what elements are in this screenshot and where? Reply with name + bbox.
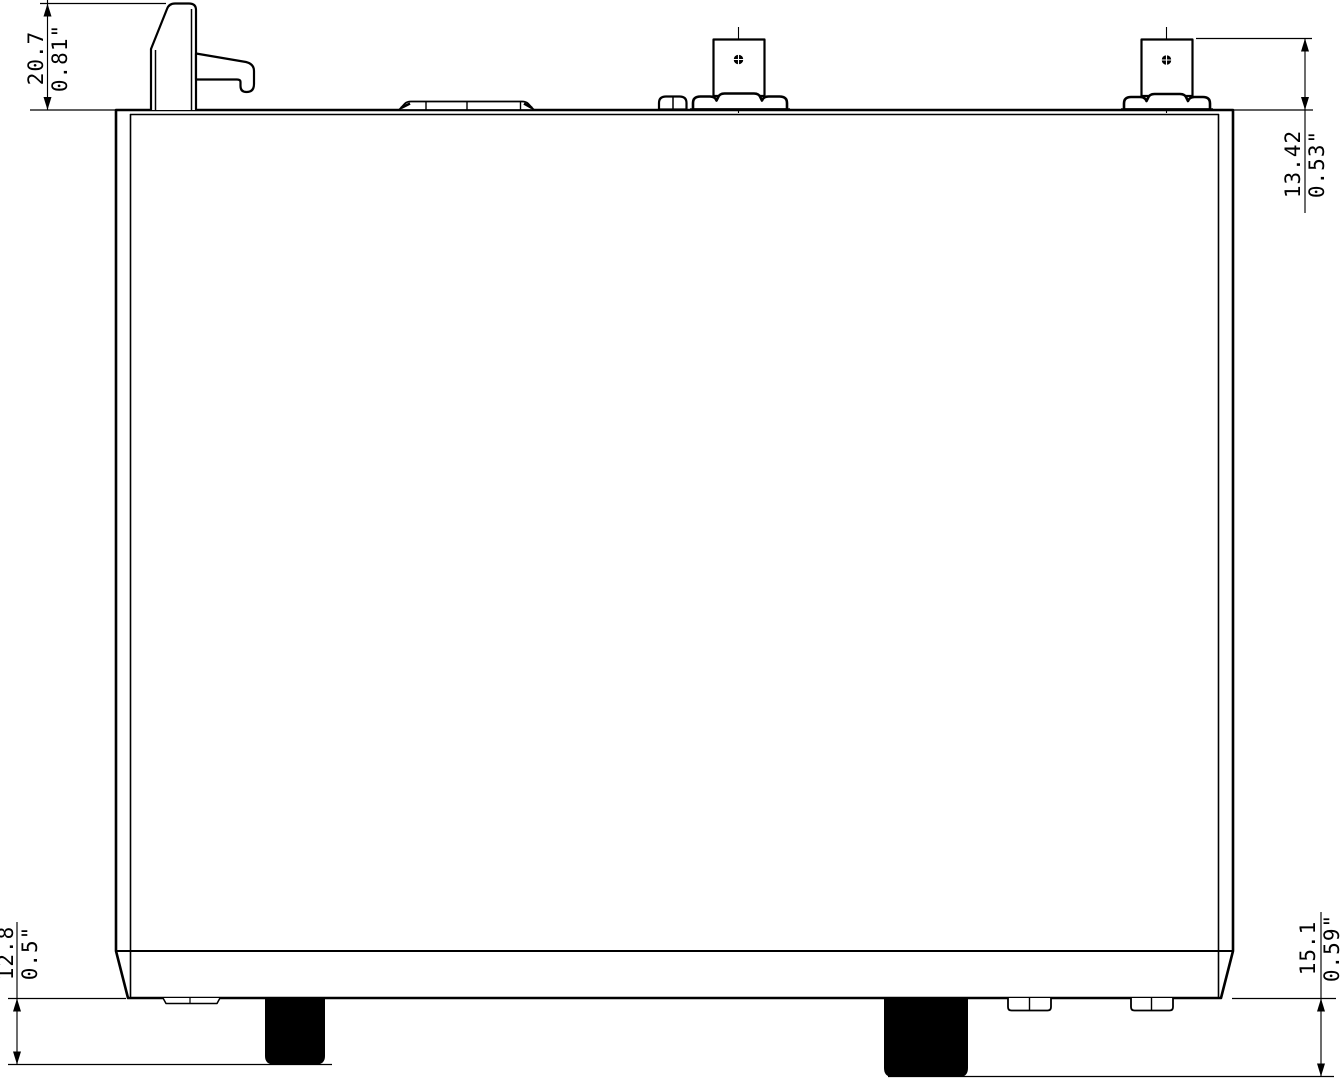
dimension-imperial-value: 0.59" xyxy=(1320,911,1340,985)
bottom-clip-left xyxy=(1008,998,1051,1011)
arrowhead-up-icon xyxy=(1317,999,1325,1012)
drawing-canvas xyxy=(0,0,1340,1080)
dimension-label-bottom-left: 12.8 0.5" xyxy=(0,923,42,984)
top-panel-strip xyxy=(399,102,534,111)
dimension-metric-value: 12.8 xyxy=(0,923,18,984)
mounting-bracket xyxy=(151,4,254,111)
dimension-label-top-left: 20.7 0.81" xyxy=(24,21,72,95)
dimension-imperial-value: 0.5" xyxy=(18,923,42,984)
dimension-label-top-right: 13.42 0.53" xyxy=(1281,127,1329,201)
arrowhead-up-icon xyxy=(1301,39,1309,52)
bnc-nut xyxy=(1124,94,1210,110)
arrowhead-down-icon xyxy=(1317,1064,1325,1077)
bottom-clip-right xyxy=(1131,998,1173,1011)
bnc-nut xyxy=(693,94,787,110)
arrowhead-up-icon xyxy=(44,4,52,17)
rubber-foot-right xyxy=(884,999,968,1077)
arrowhead-down-icon xyxy=(44,97,52,110)
dimension-metric-value: 13.42 xyxy=(1281,127,1305,201)
dimension-metric-value: 20.7 xyxy=(24,21,48,95)
dimension-label-bottom-right: 15.1 0.59" xyxy=(1296,911,1340,985)
dimension-imperial-value: 0.53" xyxy=(1305,127,1329,201)
bnc-connector-right xyxy=(1121,27,1213,117)
bottom-tab xyxy=(163,998,220,1004)
bracket-hook-arm xyxy=(196,54,254,93)
dimension-imperial-value: 0.81" xyxy=(48,21,72,95)
arrowhead-down-icon xyxy=(1301,97,1309,110)
arrowhead-up-icon xyxy=(13,999,21,1012)
rubber-foot-left xyxy=(265,999,325,1065)
arrowhead-down-icon xyxy=(13,1052,21,1065)
hex-standoff xyxy=(659,97,687,110)
chassis-body xyxy=(116,110,1233,998)
technical-drawing: 20.7 0.81" 13.42 0.53" 12.8 0.5" 15.1 0.… xyxy=(0,0,1340,1080)
dimension-metric-value: 15.1 xyxy=(1296,911,1320,985)
bnc-connector-center xyxy=(690,27,790,117)
